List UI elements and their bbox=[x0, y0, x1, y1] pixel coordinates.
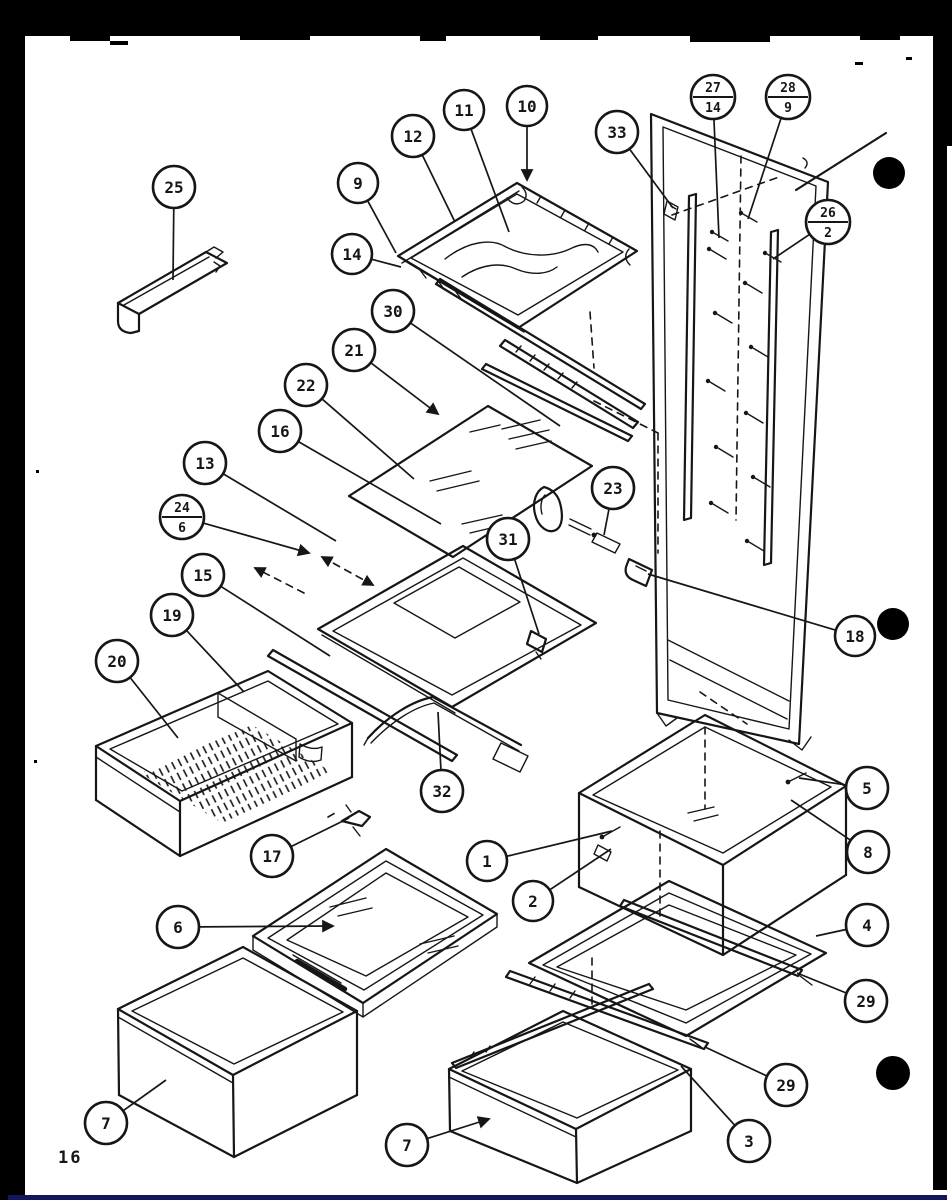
callout-28-9: 289 bbox=[748, 75, 810, 219]
svg-text:25: 25 bbox=[164, 178, 183, 197]
callout-12: 12 bbox=[392, 115, 455, 222]
svg-text:12: 12 bbox=[403, 127, 422, 146]
svg-text:29: 29 bbox=[856, 992, 875, 1011]
part-shelf-frame-13-16 bbox=[255, 546, 596, 761]
exploded-parts-diagram: 2512111091433271428926230212216132461523… bbox=[0, 0, 952, 1200]
svg-text:1: 1 bbox=[482, 852, 492, 871]
svg-text:31: 31 bbox=[498, 530, 517, 549]
svg-text:16: 16 bbox=[270, 422, 289, 441]
svg-text:22: 22 bbox=[296, 376, 315, 395]
svg-text:26: 26 bbox=[820, 206, 836, 221]
callout-18: 18 bbox=[648, 574, 875, 656]
callout-2: 2 bbox=[513, 849, 611, 921]
callout-32: 32 bbox=[421, 712, 463, 812]
bottom-rule bbox=[8, 1195, 947, 1200]
svg-text:4: 4 bbox=[862, 916, 872, 935]
callout-29a: 29 bbox=[797, 973, 887, 1022]
callout-17: 17 bbox=[251, 818, 349, 877]
svg-text:14: 14 bbox=[342, 245, 361, 264]
svg-text:6: 6 bbox=[173, 918, 183, 937]
part-door-cam-18 bbox=[626, 559, 652, 586]
callout-14: 14 bbox=[332, 234, 401, 274]
part-shelf-frame-4-29 bbox=[506, 881, 826, 1049]
callout-33: 33 bbox=[596, 111, 673, 208]
callout-29b: 29 bbox=[705, 1047, 807, 1106]
svg-text:27: 27 bbox=[705, 81, 721, 96]
callout-7b: 7 bbox=[386, 1119, 489, 1166]
svg-text:2: 2 bbox=[528, 892, 538, 911]
punch-dots bbox=[873, 157, 910, 1090]
callout-3: 3 bbox=[681, 1066, 770, 1162]
svg-text:2: 2 bbox=[824, 226, 832, 241]
svg-text:33: 33 bbox=[607, 123, 626, 142]
part-meat-cover-6 bbox=[253, 849, 497, 1017]
svg-text:28: 28 bbox=[780, 81, 796, 96]
svg-text:7: 7 bbox=[101, 1114, 111, 1133]
part-crisper-tray-19-20 bbox=[96, 671, 352, 856]
callout-27-14: 2714 bbox=[691, 75, 735, 238]
scanned-parts-diagram-page: 2512111091433271428926230212216132461523… bbox=[0, 0, 952, 1200]
svg-text:15: 15 bbox=[193, 566, 212, 585]
part-bracket-17 bbox=[328, 805, 370, 836]
svg-text:7: 7 bbox=[402, 1136, 412, 1155]
svg-text:21: 21 bbox=[344, 341, 363, 360]
svg-text:19: 19 bbox=[162, 606, 181, 625]
svg-text:24: 24 bbox=[174, 501, 190, 516]
callout-8: 8 bbox=[791, 800, 889, 873]
part-shelf-rails bbox=[436, 279, 645, 441]
svg-text:17: 17 bbox=[262, 847, 281, 866]
callout-7a: 7 bbox=[85, 1080, 166, 1144]
svg-text:9: 9 bbox=[353, 174, 363, 193]
svg-text:9: 9 bbox=[784, 101, 792, 116]
svg-text:6: 6 bbox=[178, 521, 186, 536]
svg-text:5: 5 bbox=[862, 779, 872, 798]
callout-24-6: 246 bbox=[160, 495, 309, 553]
callout-1: 1 bbox=[467, 831, 612, 881]
callout-13: 13 bbox=[184, 442, 336, 541]
svg-text:23: 23 bbox=[603, 479, 622, 498]
svg-text:8: 8 bbox=[863, 843, 873, 862]
callout-20: 20 bbox=[96, 640, 178, 738]
svg-text:32: 32 bbox=[432, 782, 451, 801]
part-utility-bin-1-2-5-8 bbox=[579, 715, 846, 955]
callout-10: 10 bbox=[507, 86, 547, 180]
svg-text:10: 10 bbox=[517, 97, 536, 116]
svg-text:14: 14 bbox=[705, 101, 721, 116]
svg-text:29: 29 bbox=[776, 1076, 795, 1095]
callout-19: 19 bbox=[151, 594, 244, 692]
callout-16: 16 bbox=[259, 410, 441, 524]
callout-21: 21 bbox=[333, 329, 438, 414]
svg-text:20: 20 bbox=[107, 652, 126, 671]
svg-text:3: 3 bbox=[744, 1132, 754, 1151]
svg-text:13: 13 bbox=[195, 454, 214, 473]
callout-11: 11 bbox=[444, 90, 509, 232]
part-crisper-drawer-right-7-3 bbox=[449, 984, 691, 1183]
svg-text:11: 11 bbox=[454, 101, 473, 120]
page-number: 16 bbox=[58, 1148, 82, 1168]
callout-26-2: 262 bbox=[773, 200, 850, 259]
svg-text:30: 30 bbox=[383, 302, 402, 321]
part-top-shelf bbox=[398, 183, 637, 332]
scan-borders bbox=[0, 0, 952, 1200]
callout-4: 4 bbox=[816, 904, 888, 946]
svg-text:18: 18 bbox=[845, 627, 864, 646]
callout-23: 23 bbox=[592, 467, 634, 535]
